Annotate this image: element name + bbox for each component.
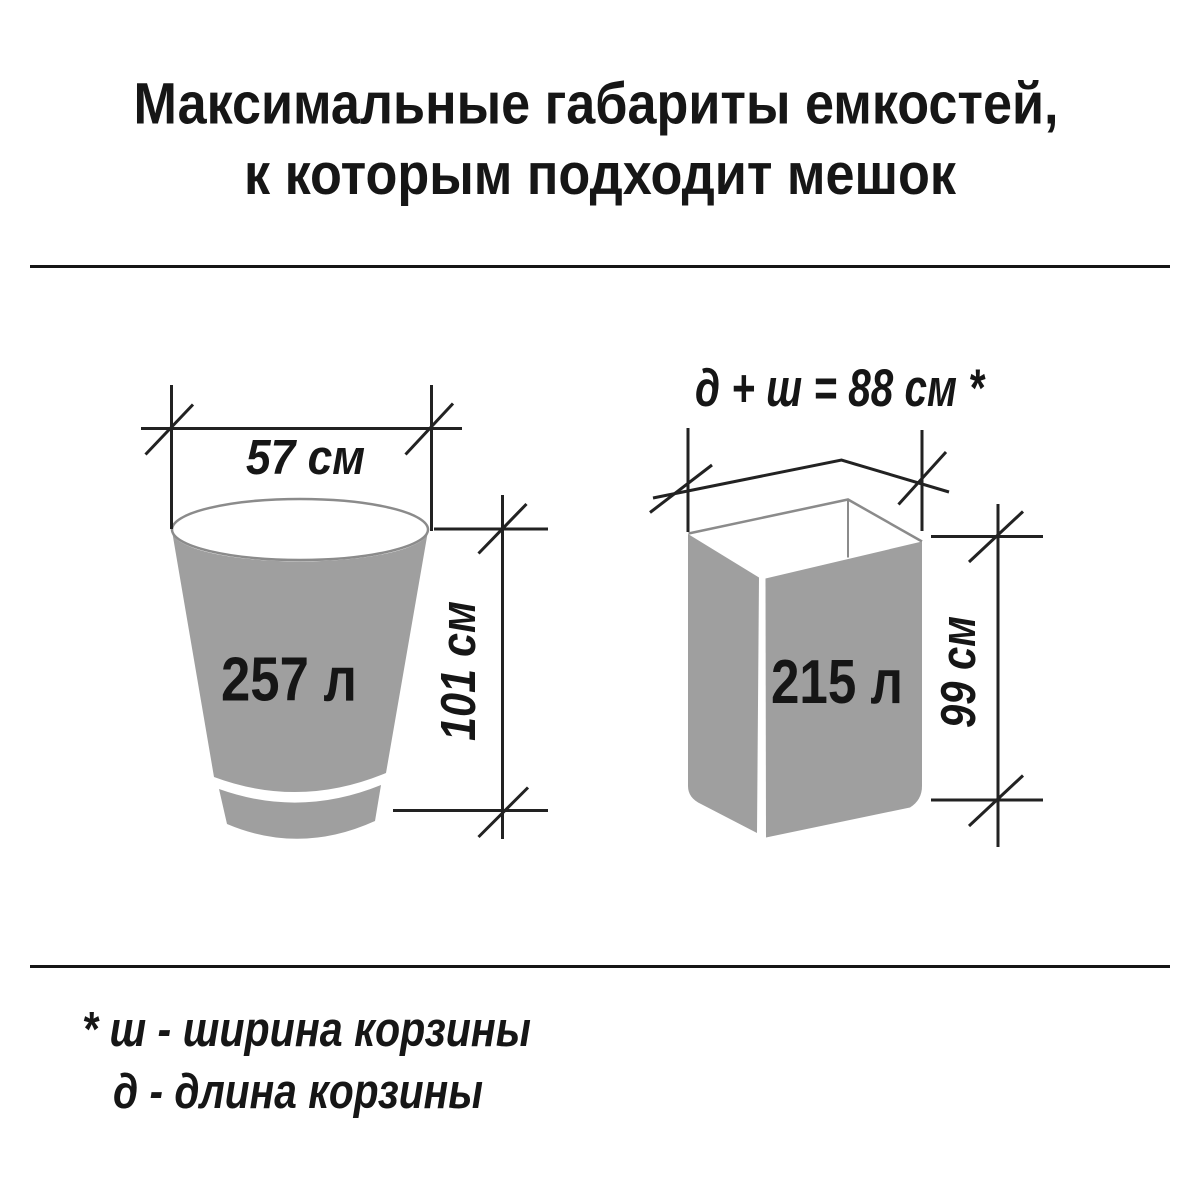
- svg-text:57 см: 57 см: [246, 430, 365, 485]
- svg-text:215 л: 215 л: [771, 647, 903, 717]
- svg-text:* ш - ширина корзины: * ш - ширина корзины: [82, 1003, 531, 1057]
- svg-text:Максимальные габариты емкостей: Максимальные габариты емкостей,: [134, 72, 1059, 137]
- svg-text:к которым подходит мешок: к которым подходит мешок: [244, 142, 957, 207]
- svg-text:д - длина корзины: д - длина корзины: [113, 1065, 483, 1119]
- svg-text:101 см: 101 см: [431, 601, 486, 741]
- svg-text:257 л: 257 л: [221, 645, 357, 715]
- svg-text:д + ш = 88 см *: д + ш = 88 см *: [695, 359, 986, 418]
- svg-text:99 см: 99 см: [931, 616, 986, 728]
